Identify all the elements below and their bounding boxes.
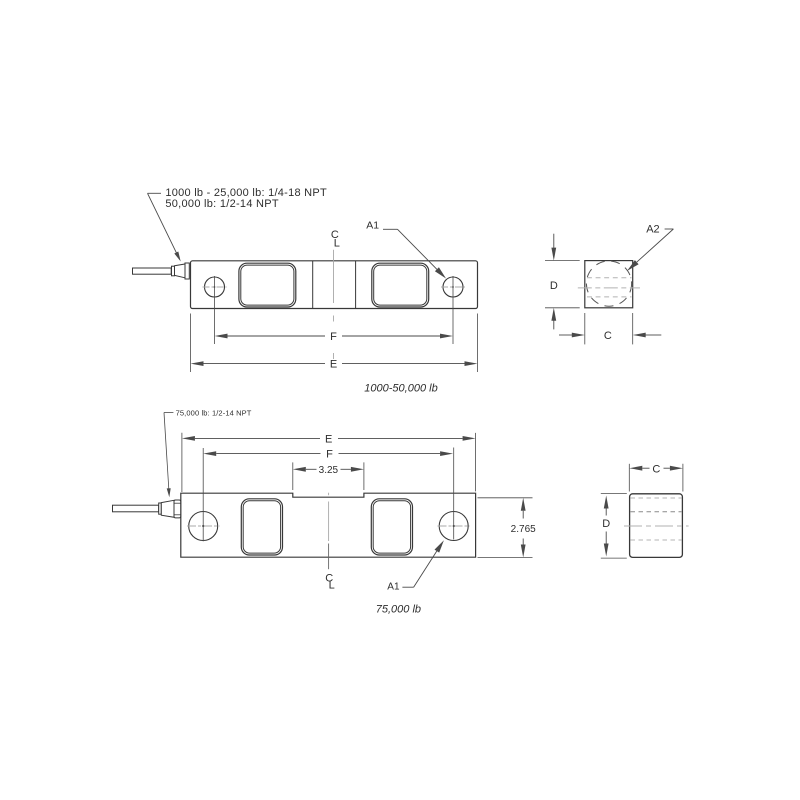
svg-text:F: F xyxy=(326,449,333,461)
svg-text:75,000 lb: 1/2-14 NPT: 75,000 lb: 1/2-14 NPT xyxy=(176,408,252,417)
svg-text:D: D xyxy=(602,518,610,530)
svg-text:50,000 lb: 1/2-14 NPT: 50,000 lb: 1/2-14 NPT xyxy=(165,198,279,210)
svg-text:A2: A2 xyxy=(646,224,659,236)
svg-text:L: L xyxy=(329,580,335,592)
svg-text:A1: A1 xyxy=(387,581,400,592)
svg-text:C: C xyxy=(652,463,660,475)
svg-text:2.765: 2.765 xyxy=(511,524,536,535)
svg-text:F: F xyxy=(330,331,337,343)
svg-text:D: D xyxy=(550,280,558,292)
svg-text:E: E xyxy=(330,359,337,371)
svg-text:3.25: 3.25 xyxy=(319,465,339,476)
svg-text:C: C xyxy=(604,330,612,342)
svg-text:E: E xyxy=(325,433,332,445)
svg-text:L: L xyxy=(334,237,340,249)
svg-text:75,000 lb: 75,000 lb xyxy=(376,604,421,616)
svg-text:A1: A1 xyxy=(366,220,379,232)
svg-text:1000-50,000 lb: 1000-50,000 lb xyxy=(364,382,437,394)
